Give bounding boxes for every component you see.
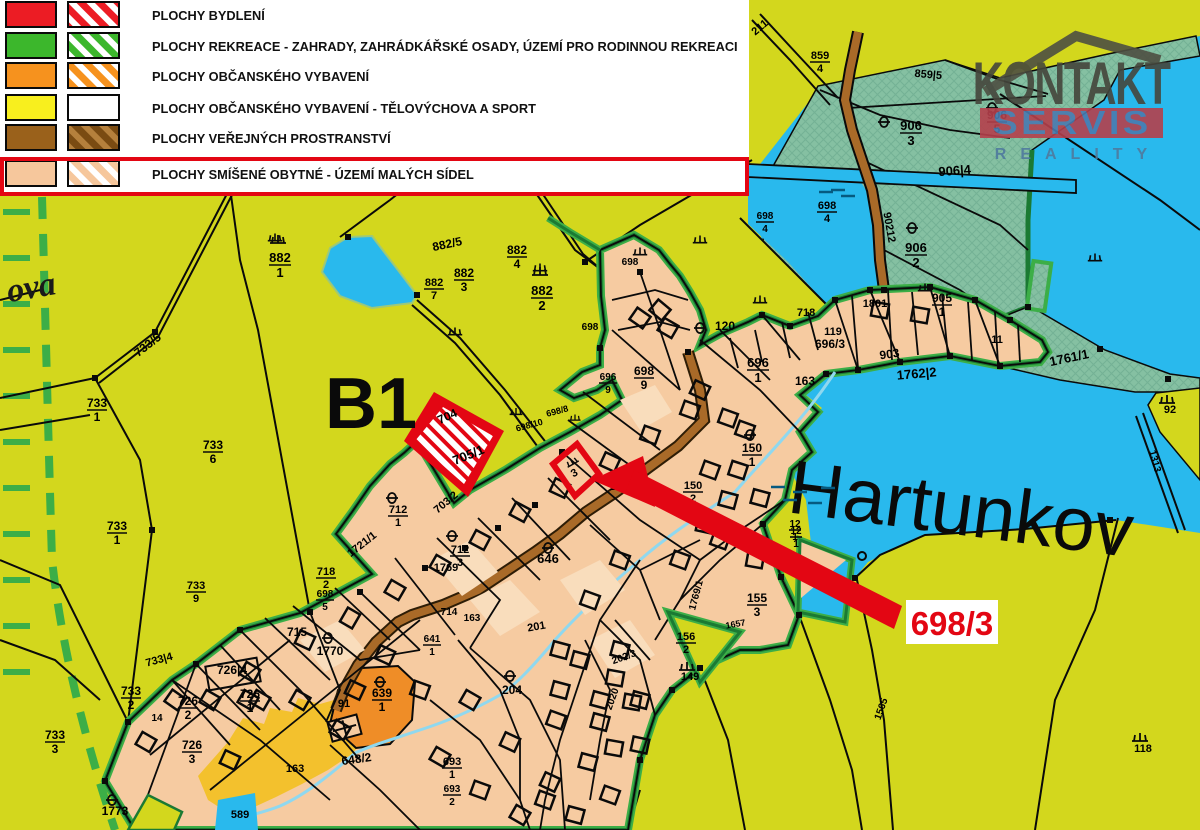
svg-text:882: 882 <box>507 243 527 257</box>
svg-text:2: 2 <box>128 698 135 712</box>
svg-text:92: 92 <box>1164 404 1176 416</box>
svg-text:4: 4 <box>514 257 521 271</box>
svg-text:PLOCHY VEŘEJNÝCH PROSTRANSTVÍ: PLOCHY VEŘEJNÝCH PROSTRANSTVÍ <box>152 131 391 146</box>
svg-text:9: 9 <box>605 385 611 396</box>
svg-text:1: 1 <box>247 701 254 715</box>
svg-text:PLOCHY OBČANSKÉHO VYBAVENÍ: PLOCHY OBČANSKÉHO VYBAVENÍ <box>152 69 370 84</box>
svg-text:204: 204 <box>502 683 522 697</box>
svg-text:7: 7 <box>431 290 437 302</box>
svg-text:2: 2 <box>449 797 455 808</box>
svg-text:639: 639 <box>372 686 392 700</box>
svg-text:12: 12 <box>789 519 801 530</box>
svg-text:726: 726 <box>178 694 198 708</box>
svg-text:733: 733 <box>107 519 127 533</box>
svg-text:1: 1 <box>114 533 121 547</box>
svg-text:2: 2 <box>185 708 192 722</box>
svg-text:718: 718 <box>797 307 815 319</box>
svg-text:1: 1 <box>792 532 798 543</box>
svg-text:1: 1 <box>395 517 401 529</box>
svg-text:726: 726 <box>182 738 202 752</box>
svg-text:712: 712 <box>389 504 407 516</box>
svg-text:906: 906 <box>905 240 927 255</box>
svg-text:REALITY: REALITY <box>995 146 1161 163</box>
svg-text:119: 119 <box>824 326 842 338</box>
svg-text:712: 712 <box>451 544 469 556</box>
svg-text:1: 1 <box>939 305 946 319</box>
svg-text:1: 1 <box>449 769 455 781</box>
svg-text:118: 118 <box>1134 743 1152 755</box>
svg-text:1: 1 <box>276 265 283 280</box>
svg-text:150: 150 <box>684 480 702 492</box>
svg-text:5: 5 <box>322 602 328 613</box>
svg-text:693: 693 <box>443 756 461 768</box>
svg-text:1: 1 <box>754 370 761 385</box>
svg-text:1: 1 <box>379 700 386 714</box>
svg-text:696/3: 696/3 <box>815 337 845 351</box>
svg-text:1: 1 <box>429 647 435 658</box>
svg-text:859|5: 859|5 <box>914 68 943 82</box>
svg-text:PLOCHY OBČANSKÉHO VYBAVENÍ - T: PLOCHY OBČANSKÉHO VYBAVENÍ - TĚLOVÝCHOVA… <box>152 101 536 116</box>
svg-text:1770: 1770 <box>317 644 344 658</box>
svg-text:726: 726 <box>240 687 260 701</box>
svg-text:1: 1 <box>94 410 101 424</box>
svg-text:1769: 1769 <box>434 562 458 574</box>
svg-text:641: 641 <box>424 634 441 645</box>
svg-text:905: 905 <box>932 291 952 305</box>
svg-text:718: 718 <box>317 566 335 578</box>
svg-text:906|4: 906|4 <box>938 162 972 179</box>
svg-text:589: 589 <box>231 809 249 821</box>
svg-text:714: 714 <box>441 607 458 618</box>
svg-text:733: 733 <box>121 684 141 698</box>
svg-text:698: 698 <box>634 364 654 378</box>
svg-text:696: 696 <box>600 372 617 383</box>
svg-text:733: 733 <box>45 728 65 742</box>
svg-text:2: 2 <box>912 255 919 270</box>
svg-text:859: 859 <box>811 50 829 62</box>
svg-text:3: 3 <box>754 605 761 619</box>
svg-text:3: 3 <box>907 133 914 148</box>
svg-text:91: 91 <box>338 698 350 710</box>
svg-text:698: 698 <box>818 200 836 212</box>
svg-text:1773: 1773 <box>102 804 129 818</box>
svg-text:882: 882 <box>531 283 553 298</box>
svg-text:3: 3 <box>461 280 468 294</box>
svg-text:11: 11 <box>991 334 1003 346</box>
svg-text:PLOCHY SMÍŠENÉ OBYTNÉ - ÚZEMÍ: PLOCHY SMÍŠENÉ OBYTNÉ - ÚZEMÍ MALÝCH SÍD… <box>152 167 474 182</box>
svg-text:3: 3 <box>52 742 59 756</box>
svg-text:163: 163 <box>286 763 304 775</box>
svg-text:4: 4 <box>817 63 824 75</box>
svg-text:B1: B1 <box>325 364 417 444</box>
svg-text:6: 6 <box>210 452 217 466</box>
svg-text:1801: 1801 <box>863 298 887 310</box>
svg-text:155: 155 <box>747 591 767 605</box>
svg-text:PLOCHY REKREACE - ZAHRADY, ZA: PLOCHY REKREACE - ZAHRADY, ZAHRÁDKÁŘSKÉ … <box>152 39 738 54</box>
svg-text:3: 3 <box>189 752 196 766</box>
svg-text:698: 698 <box>757 211 774 222</box>
svg-text:693: 693 <box>444 784 461 795</box>
svg-text:2: 2 <box>683 644 689 656</box>
svg-text:163: 163 <box>464 613 481 624</box>
svg-text:149: 149 <box>681 671 699 683</box>
svg-text:4: 4 <box>762 224 768 235</box>
svg-text:1: 1 <box>749 455 756 469</box>
svg-text:2: 2 <box>323 579 329 591</box>
svg-text:906: 906 <box>900 118 922 133</box>
svg-text:696: 696 <box>747 355 769 370</box>
svg-text:698: 698 <box>582 322 599 333</box>
svg-text:882: 882 <box>454 266 474 280</box>
svg-text:9: 9 <box>641 378 648 392</box>
svg-text:733: 733 <box>187 580 205 592</box>
svg-text:120: 120 <box>715 319 735 333</box>
svg-text:14: 14 <box>151 713 163 724</box>
svg-text:726|4: 726|4 <box>217 663 247 677</box>
svg-text:SERVIS: SERVIS <box>992 104 1151 141</box>
svg-text:156: 156 <box>677 631 695 643</box>
svg-text:903: 903 <box>879 346 901 363</box>
svg-text:882: 882 <box>269 250 291 265</box>
svg-text:698/3: 698/3 <box>911 605 994 642</box>
svg-text:163: 163 <box>795 374 815 388</box>
svg-text:698: 698 <box>622 257 639 268</box>
svg-text:882: 882 <box>425 277 443 289</box>
svg-text:4: 4 <box>824 213 831 225</box>
svg-text:733: 733 <box>87 396 107 410</box>
svg-text:PLOCHY BYDLENÍ: PLOCHY BYDLENÍ <box>152 8 265 23</box>
svg-text:733: 733 <box>203 438 223 452</box>
svg-text:9: 9 <box>193 593 199 605</box>
svg-text:150: 150 <box>742 441 762 455</box>
svg-text:715: 715 <box>287 625 307 639</box>
svg-text:2: 2 <box>538 298 545 313</box>
